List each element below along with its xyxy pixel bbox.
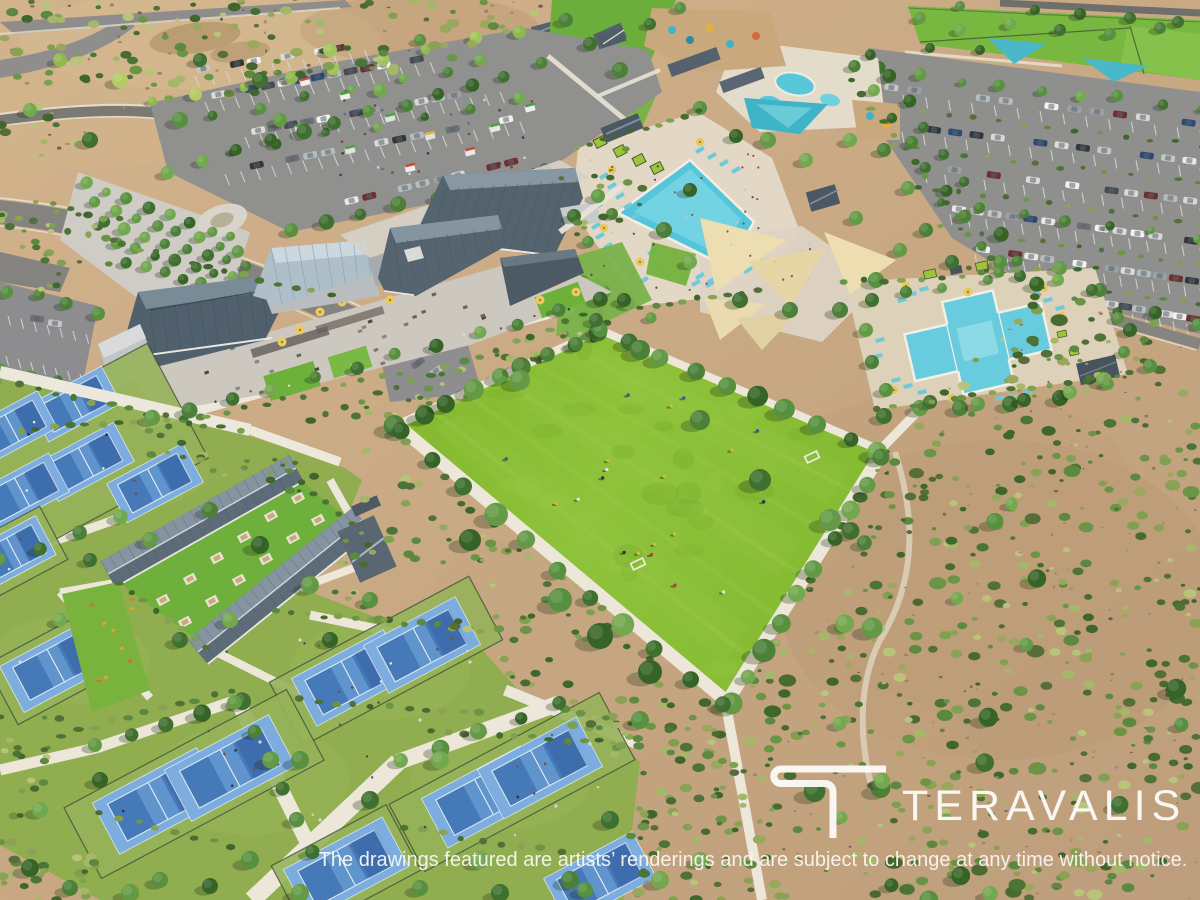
svg-text:TERAVALIS: TERAVALIS (902, 782, 1186, 830)
svg-text:The drawings featured are arti: The drawings featured are artists’ rende… (319, 849, 1188, 871)
